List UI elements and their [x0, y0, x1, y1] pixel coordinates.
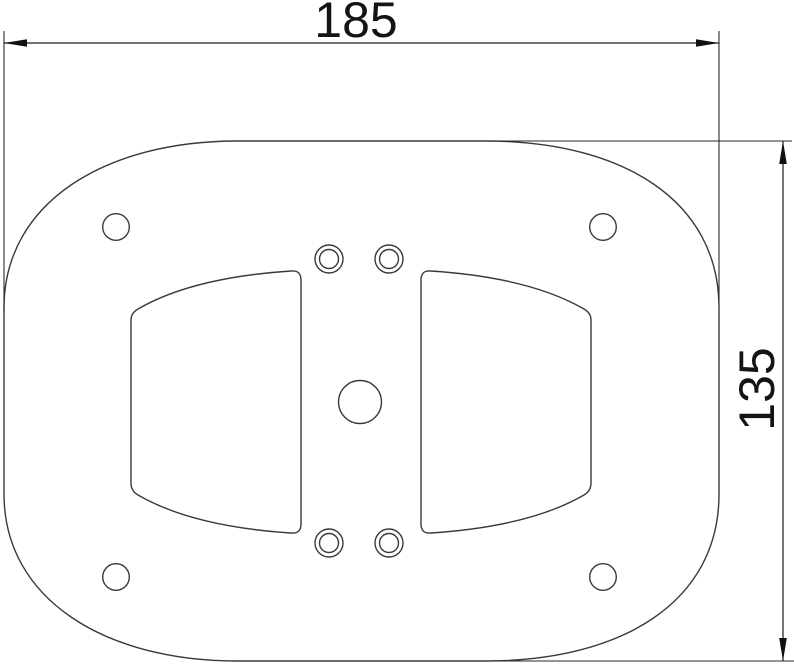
arrowhead-left-icon [4, 39, 27, 47]
horizontal-dimension: 185 [4, 0, 719, 312]
plate-outline [4, 141, 719, 661]
width-dimension-value: 185 [314, 0, 397, 48]
inner-ring [380, 534, 399, 553]
double-ring-hole-top-right [375, 245, 403, 273]
inner-ring [320, 534, 339, 553]
right-cutout [421, 271, 591, 533]
corner-hole-bottom-left [103, 564, 130, 591]
double-ring-hole-bottom-left [315, 529, 343, 557]
vertical-dimension: 135 [493, 141, 794, 661]
height-dimension-value: 135 [729, 347, 785, 430]
plate-drawing-svg: 185 135 [0, 0, 794, 665]
plate-geometry [4, 141, 719, 661]
corner-hole-bottom-right [590, 564, 617, 591]
arrowhead-down-icon [779, 638, 787, 661]
corner-hole-top-right [590, 214, 617, 241]
arrowhead-right-icon [696, 39, 719, 47]
corner-hole-top-left [103, 214, 130, 241]
left-cutout [131, 271, 301, 533]
arrowhead-up-icon [779, 141, 787, 164]
technical-drawing-canvas: 185 135 [0, 0, 794, 665]
double-ring-hole-top-left [315, 245, 343, 273]
double-ring-hole-bottom-right [375, 529, 403, 557]
center-hole [339, 381, 382, 424]
inner-ring [380, 250, 399, 269]
inner-ring [320, 250, 339, 269]
